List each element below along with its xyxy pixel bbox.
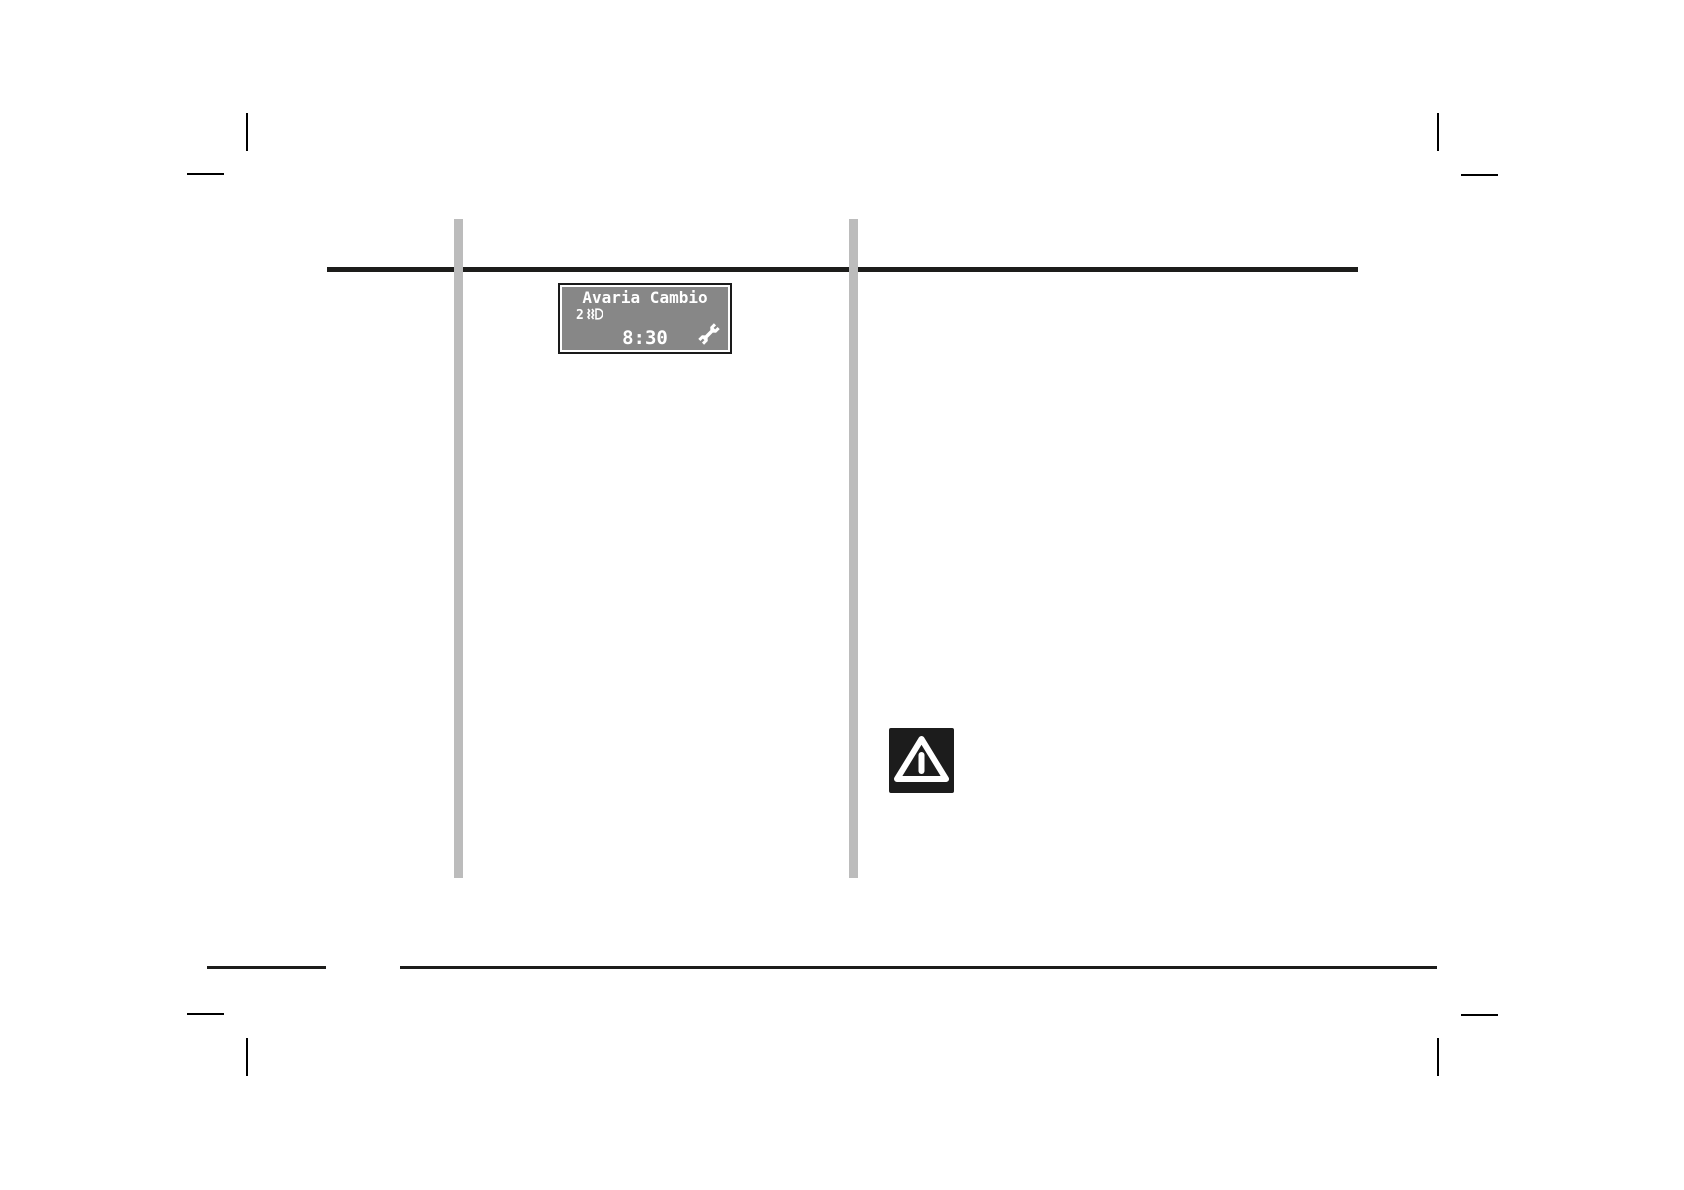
manual-page: Avaria Cambio 2 8:30 <box>0 0 1684 1190</box>
crop-mark-bottom-left-horizontal <box>187 1013 224 1015</box>
footer-rule-main <box>400 966 1437 969</box>
gear-indicator: 2 <box>576 310 584 322</box>
crop-mark-top-right-horizontal <box>1461 174 1498 176</box>
header-rule <box>327 267 1358 272</box>
crop-mark-top-right-vertical <box>1437 113 1439 151</box>
display-message: Avaria Cambio <box>568 291 722 305</box>
wrench-icon <box>696 321 722 347</box>
warning-triangle-icon <box>889 728 954 793</box>
footer-rule-left <box>207 966 326 969</box>
crop-mark-top-left-vertical <box>246 113 248 151</box>
crop-mark-bottom-right-horizontal <box>1461 1014 1498 1016</box>
cluster-display: Avaria Cambio 2 8:30 <box>558 283 732 354</box>
column-separator-right <box>849 219 858 878</box>
crop-mark-bottom-right-vertical <box>1437 1038 1439 1076</box>
crop-mark-top-left-horizontal <box>187 173 224 175</box>
low-beam-headlight-icon <box>586 308 603 323</box>
column-separator-left <box>454 219 463 878</box>
crop-mark-bottom-left-vertical <box>246 1038 248 1076</box>
